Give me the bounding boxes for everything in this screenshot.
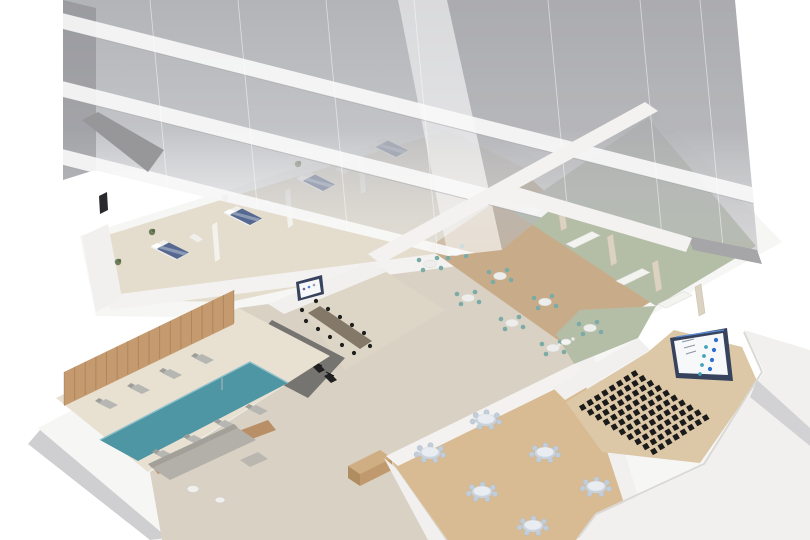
banquet-table-top (478, 414, 495, 424)
side-table (561, 339, 571, 345)
dining-table (494, 272, 507, 280)
dining-chair (477, 300, 482, 305)
dining-chair (459, 302, 464, 307)
conference-chair (316, 327, 320, 331)
conference-chair (362, 331, 366, 335)
dining-chair (581, 332, 586, 337)
slide-dot-teal (702, 354, 706, 358)
dining-chair (540, 342, 545, 347)
banquet-table-top (474, 486, 491, 496)
dining-chair (595, 320, 600, 325)
banquet-chair (543, 525, 548, 530)
slide-dot-teal (698, 372, 702, 376)
plant-top (152, 229, 155, 232)
dining-chair (536, 306, 541, 311)
dining-chair (599, 330, 604, 335)
slide-dot-blue (714, 338, 718, 342)
dining-table (424, 260, 437, 268)
dining-chair (499, 317, 504, 322)
dining-chair (473, 290, 478, 295)
dining-chair (417, 258, 422, 263)
screen-mark (308, 286, 311, 289)
banquet-chair (492, 491, 497, 496)
coffee-table (187, 486, 199, 493)
banquet-chair (580, 486, 585, 491)
banquet-chair (517, 525, 522, 530)
dining-table (462, 294, 475, 302)
banquet-chair (470, 419, 475, 424)
conference-chair (338, 315, 342, 319)
side-chair (571, 337, 575, 341)
dining-chair (435, 256, 440, 261)
dining-chair (562, 350, 567, 355)
banquet-table-top (525, 520, 542, 530)
conference-chair (368, 344, 372, 348)
slide-dot-teal (704, 345, 708, 349)
dining-chair (505, 268, 510, 273)
dining-chair (439, 266, 444, 271)
slide-dot-blue (712, 348, 716, 352)
banquet-chair (496, 419, 501, 424)
side-chair (557, 343, 561, 347)
dining-chair (491, 280, 496, 285)
banquet-chair (555, 452, 560, 457)
dining-chair (455, 292, 460, 297)
banquet-chair (529, 452, 534, 457)
conference-chair (304, 319, 308, 323)
coffee-table (215, 497, 225, 503)
dining-chair (554, 304, 559, 309)
dining-chair (521, 325, 526, 330)
dining-table (584, 324, 597, 332)
conference-chair (326, 307, 330, 311)
banquet-chair (414, 452, 419, 457)
screen-mark (313, 284, 316, 287)
slide-dot-blue (708, 367, 712, 371)
dining-chair (577, 322, 582, 327)
banquet-chair (606, 486, 611, 491)
dining-chair (532, 296, 537, 301)
banquet-chair (466, 491, 471, 496)
dining-chair (464, 254, 469, 259)
banquet-chair (440, 452, 445, 457)
banquet-table-top (588, 481, 605, 491)
conference-chair (352, 351, 356, 355)
plant-top (118, 259, 121, 262)
slide-dot-teal (700, 363, 704, 367)
conference-chair (340, 343, 344, 347)
dining-chair (487, 270, 492, 275)
dining-chair (421, 268, 426, 273)
dining-chair (503, 327, 508, 332)
conference-chair (314, 299, 318, 303)
slide-dot-blue (710, 358, 714, 362)
dining-chair (446, 256, 451, 261)
conference-chair (350, 323, 354, 327)
screen-mark (303, 288, 306, 291)
cutaway-scene (0, 0, 810, 540)
dining-chair (517, 315, 522, 320)
dining-table (539, 298, 552, 306)
banquet-table-top (422, 447, 439, 457)
building-render (0, 0, 810, 540)
dining-table (506, 319, 519, 327)
dining-chair (550, 294, 555, 299)
conference-chair (328, 335, 332, 339)
dining-chair (544, 352, 549, 357)
banquet-table-top (537, 447, 554, 457)
conference-chair (300, 308, 304, 312)
dining-chair (509, 278, 514, 283)
